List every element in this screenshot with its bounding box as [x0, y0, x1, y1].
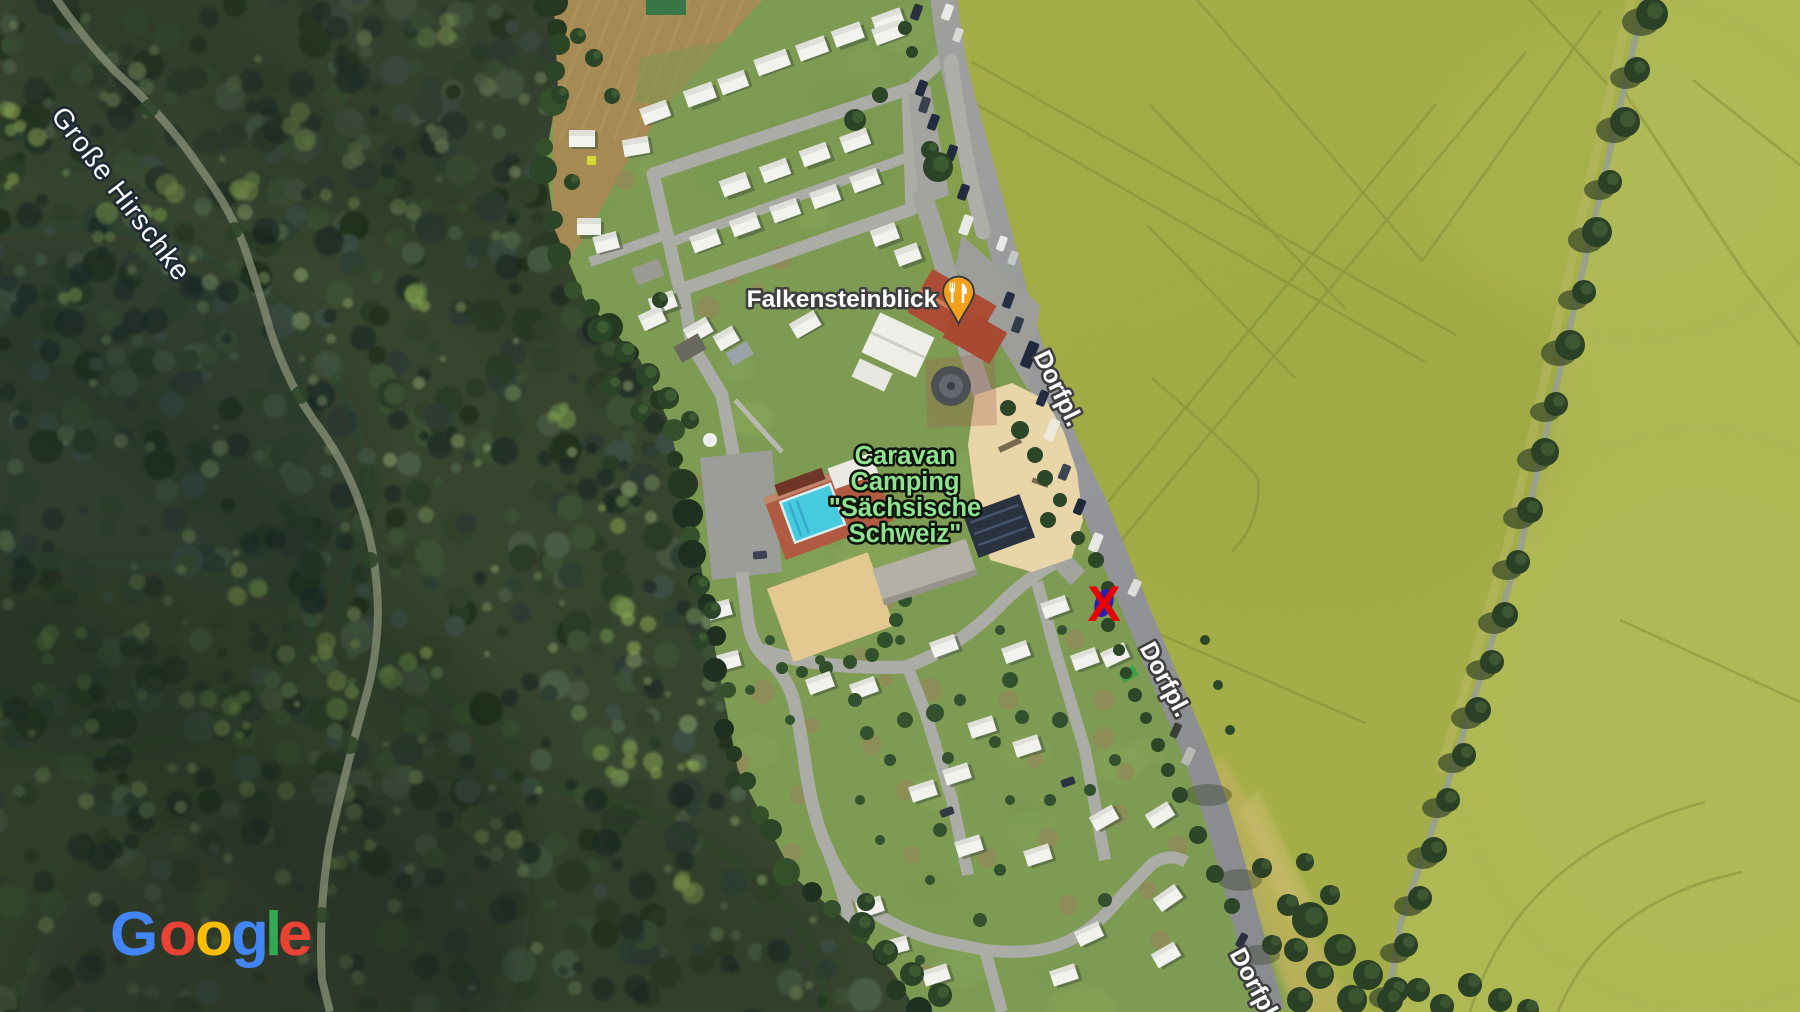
svg-text:g: g — [231, 900, 269, 969]
svg-text:Schweiz": Schweiz" — [849, 520, 962, 548]
svg-text:e: e — [278, 900, 312, 969]
svg-text:o: o — [195, 900, 233, 969]
svg-text:Camping: Camping — [850, 468, 959, 496]
svg-text:G: G — [110, 900, 158, 969]
svg-text:o: o — [159, 900, 197, 969]
svg-text:Falkensteinblick: Falkensteinblick — [747, 286, 938, 313]
svg-text:Caravan: Caravan — [855, 442, 956, 470]
svg-text:"Sächsische: "Sächsische — [829, 494, 981, 522]
svg-text:X: X — [1087, 576, 1120, 632]
